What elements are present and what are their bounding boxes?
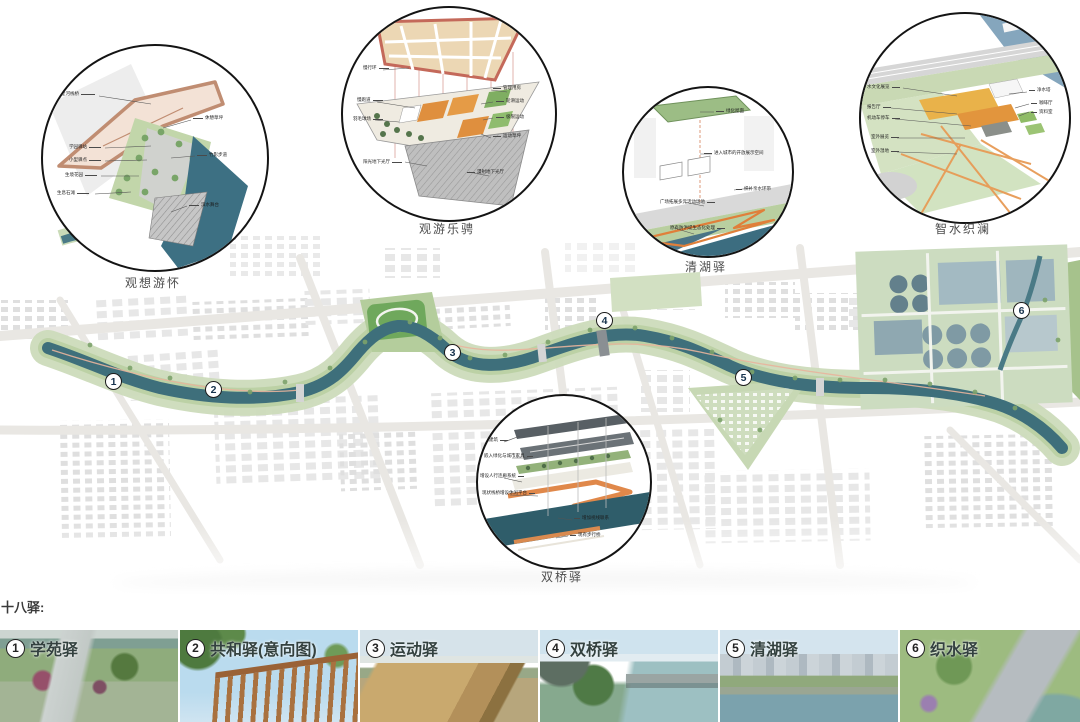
callout-label: 水文化展览 (867, 85, 890, 90)
map-marker-1: 1 (105, 373, 122, 390)
callout-label: 滨水舞台 (201, 203, 219, 208)
marker-number: 5 (741, 372, 747, 384)
marker-number: 2 (211, 384, 217, 396)
callout-label: 广场拓展多元活动场地 (660, 200, 705, 205)
detail-circle-shuangqiao: 新建建筑 嵌入绿化与城市家具 增设人行连廊系统 现状栈桥增设休闲平台 增加视线联… (476, 394, 652, 570)
pergola-structure (210, 650, 358, 722)
callout-label: 资料室 (1039, 110, 1053, 115)
circle-caption: 智水织澜 (893, 220, 1033, 237)
callout-label: 新建建筑 (480, 438, 498, 443)
axon-diagram (478, 396, 650, 568)
station-name: 织水驿 (930, 636, 978, 660)
station-name: 共和驿(意向图) (210, 636, 317, 660)
callout-label: 极限运动 (506, 115, 524, 120)
callout-label: 竹影步道 (209, 153, 227, 158)
circle-caption: 清湖驿 (636, 258, 776, 275)
station-number-badge: 6 (906, 639, 925, 658)
station-name: 清湖驿 (750, 636, 798, 660)
station-photo-3: 3 运动驿 (360, 630, 538, 722)
section-heading: 十八驿: (1, 597, 44, 616)
detail-circle-qinghu: 绿化屋面 进入城市的开放展示空间 织补亲水环带 广场拓展多元活动场地 原有防洪堤… (622, 86, 794, 258)
station-number-badge: 1 (6, 639, 25, 658)
map-marker-3: 3 (444, 344, 461, 361)
detail-circle-guanxiang-youhuai: 星河栈桥 学园驿站 小型驿点 生境花园 生息石滩 休憩草坪 竹影步道 滨水舞台 (41, 44, 269, 272)
callout-label: 慢跑道 (357, 98, 371, 103)
callout-label: 室外展览 (871, 135, 889, 140)
station-label: 6 织水驿 (906, 636, 978, 660)
circle-caption: 观游乐骋 (377, 220, 517, 237)
callout-label: 生息石滩 (57, 191, 75, 196)
callout-label: 室外湿地 (871, 149, 889, 154)
station-number-badge: 2 (186, 639, 205, 658)
callout-label: 绿化屋面 (726, 109, 744, 114)
station-label: 3 运动驿 (366, 636, 438, 660)
callout-label: 阳光地下光厅 (363, 160, 390, 165)
station-photo-5: 5 清湖驿 (720, 630, 898, 722)
marker-number: 3 (450, 347, 456, 359)
station-number-badge: 4 (546, 639, 565, 658)
station-name: 双桥驿 (570, 636, 618, 660)
marker-number: 1 (111, 376, 117, 388)
circle-caption: 双桥驿 (492, 568, 632, 585)
station-label: 2 共和驿(意向图) (186, 636, 317, 660)
marker-number: 6 (1019, 305, 1025, 317)
callout-label: 现状栈桥增设休闲平台 (482, 491, 527, 496)
callout-label: 漫射地下光厅 (477, 170, 504, 175)
station-number-badge: 5 (726, 639, 745, 658)
callout-label: 机动车停车 (867, 116, 890, 121)
detail-circle-zhishui-zhilan: 水文化展览 报告厅 机动车停车 室外展览 室外湿地 净水塔 咖啡厅 资料室 (859, 12, 1071, 224)
detail-circle-guanyou-lecheng: 慢行环 慢跑道 羽毛球场 管理用房 轮滑运动 极限运动 运动草坪 阳光地下光厅 … (341, 6, 557, 222)
callout-label: 轮滑运动 (506, 99, 524, 104)
station-name: 运动驿 (390, 636, 438, 660)
map-marker-2: 2 (205, 381, 222, 398)
callout-label: 休憩草坪 (205, 116, 223, 121)
map-marker-6: 6 (1013, 302, 1030, 319)
station-label: 4 双桥驿 (546, 636, 618, 660)
station-number-badge: 3 (366, 639, 385, 658)
callout-label: 咖啡厅 (1039, 101, 1053, 106)
callout-label: 原有防洪堤生态化处理 (670, 226, 715, 231)
station-photo-1: 1 学苑驿 (0, 630, 178, 722)
callout-label: 管理用房 (503, 86, 521, 91)
callout-label: 增设人行连廊系统 (480, 474, 516, 479)
callout-label: 现有步行桥 (578, 533, 601, 538)
bridge-structure (626, 674, 718, 683)
station-photo-2: 2 共和驿(意向图) (180, 630, 358, 722)
station-name: 学苑驿 (30, 636, 78, 660)
callout-label: 星河栈桥 (61, 92, 79, 97)
marker-number: 4 (602, 315, 608, 327)
callout-label: 生境花园 (65, 173, 83, 178)
callout-label: 织补亲水环带 (744, 187, 771, 192)
callout-label: 嵌入绿化与城市家具 (484, 454, 525, 459)
callout-label: 羽毛球场 (353, 117, 371, 122)
station-photo-4: 4 双桥驿 (540, 630, 718, 722)
callout-label: 报告厅 (867, 105, 881, 110)
callout-label: 小型驿点 (69, 158, 87, 163)
circle-caption: 观想游怀 (83, 274, 223, 291)
presentation-board: 1 2 3 4 5 6 星河栈桥 (0, 0, 1080, 722)
callout-label: 运动草坪 (503, 134, 521, 139)
station-label: 5 清湖驿 (726, 636, 798, 660)
station-label: 1 学苑驿 (6, 636, 78, 660)
callout-label: 慢行环 (363, 66, 377, 71)
callout-label: 进入城市的开放展示空间 (714, 151, 764, 156)
callout-label: 增加视线联系 (582, 516, 609, 521)
axon-diagram (624, 88, 792, 256)
map-marker-4: 4 (596, 312, 613, 329)
station-photo-6: 6 织水驿 (900, 630, 1080, 722)
map-marker-5: 5 (735, 369, 752, 386)
callout-label: 净水塔 (1037, 88, 1051, 93)
callout-label: 学园驿站 (69, 145, 87, 150)
